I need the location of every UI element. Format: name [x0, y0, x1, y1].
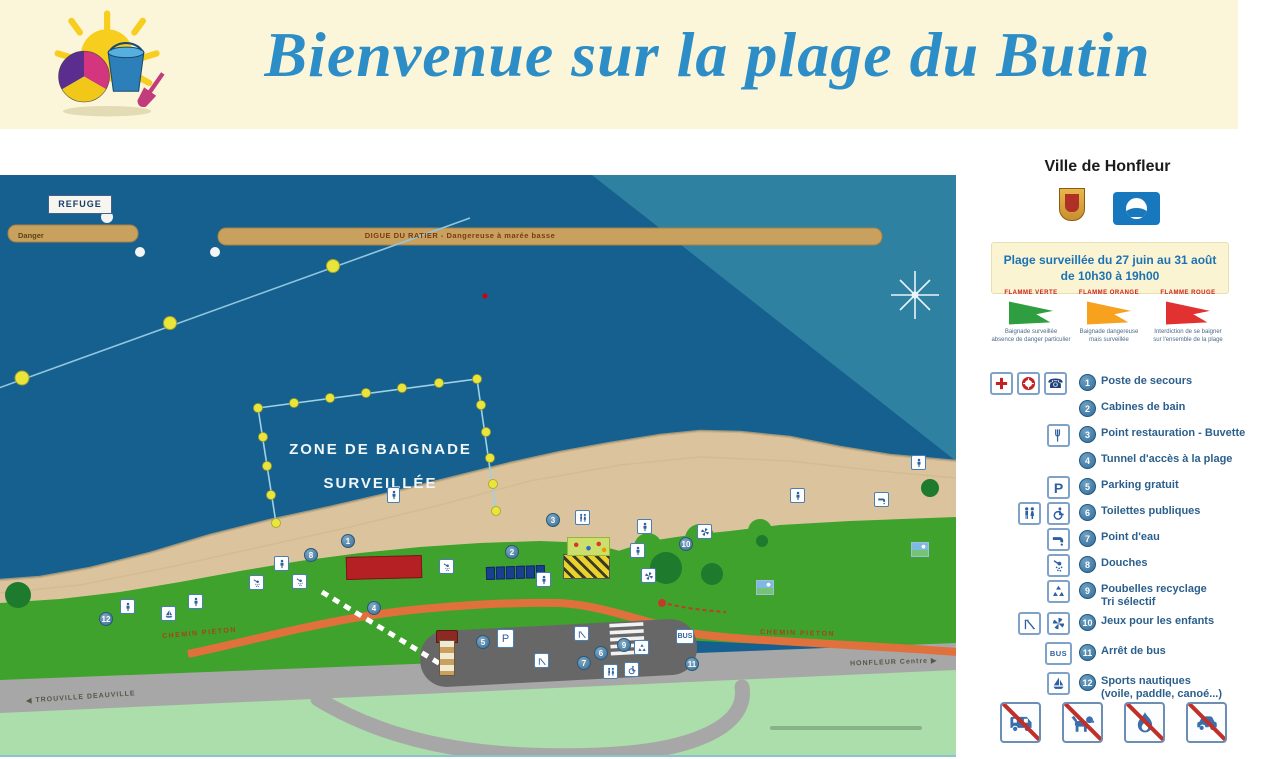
shower-icon	[249, 575, 264, 590]
legend-row-5: P 5 Parking gratuit	[985, 476, 1270, 502]
legend-row-8: 8 Douches	[985, 554, 1270, 580]
arrow-left-icon: ◀	[26, 697, 33, 704]
playground-icon	[1047, 612, 1070, 635]
danger-label: Danger	[18, 231, 44, 240]
beach-map: REFUGE Danger DIGUE DU RATIER - Dangereu…	[0, 175, 956, 757]
parking-icon: P	[1047, 476, 1070, 499]
surveillance-line1: Plage surveillée du 27 juin au 31 août	[1004, 253, 1217, 267]
flag-red-column: FLAMME ROUGE Interdiction de se baigners…	[1148, 290, 1228, 344]
legend-row-3: 3 Point restauration - Buvette	[985, 424, 1270, 450]
flag-orange-title: FLAMME ORANGE	[1069, 290, 1149, 296]
beach-sign-page: Bienvenue sur la plage du Butin	[0, 0, 1270, 759]
dike-label: DIGUE DU RATIER - Dangereuse à marée bas…	[250, 231, 670, 240]
viewpoint-photo-icon	[756, 580, 774, 595]
refuge-label: REFUGE	[48, 195, 112, 214]
swim-zone-label-line1: ZONE DE BAIGNADE	[283, 441, 478, 458]
map-marker-2: 2	[505, 545, 519, 559]
map-marker-3: 3	[546, 513, 560, 527]
red-flag-icon	[1166, 300, 1210, 326]
shower-icon	[292, 574, 307, 589]
map-marker-10: 10	[679, 537, 693, 551]
legend-row-12: 12 Sports nautiques(voile, paddle, canoé…	[985, 672, 1270, 698]
map-marker-4: 4	[367, 601, 381, 615]
person-icon	[188, 594, 203, 609]
recycle-icon	[634, 640, 649, 655]
playground-icon	[641, 568, 656, 583]
surveillance-line2: de 10h30 à 19h00	[1061, 269, 1160, 283]
viewpoint-photo-icon	[911, 542, 929, 557]
flag-orange-column: FLAMME ORANGE Baignade dangereusemais su…	[1069, 290, 1149, 344]
playground-icon	[697, 524, 712, 539]
map-marker-9: 9	[617, 638, 631, 652]
toilets-icon	[575, 510, 590, 525]
person-icon	[911, 455, 926, 470]
beach-toys-logo	[42, 6, 168, 124]
map-marker-7: 7	[577, 656, 591, 670]
bus-stop-icon: BUS	[1045, 642, 1072, 665]
toilets-icon	[1018, 502, 1041, 525]
legend-row-7: 7 Point d'eau	[985, 528, 1270, 554]
map-marker-8: 8	[304, 548, 318, 562]
slide-icon	[574, 626, 589, 641]
no-dogs-icon	[1062, 702, 1103, 743]
legend-row-2: 2 Cabines de bain	[985, 398, 1270, 424]
life-ring-icon	[1017, 372, 1040, 395]
pavillon-bleu-logo	[1113, 192, 1160, 225]
recycle-icon	[1047, 580, 1070, 603]
legend-row-9: 9 Poubelles recyclageTri sélectif	[985, 580, 1270, 606]
no-cars-icon	[1186, 702, 1227, 743]
sailing-icon	[161, 606, 176, 621]
map-marker-11: 11	[685, 657, 699, 671]
map-base-art	[0, 175, 956, 755]
wave-icon	[1126, 198, 1147, 219]
surveillance-hours-box: Plage surveillée du 27 juin au 31 août d…	[991, 242, 1229, 294]
wheelchair-icon	[624, 662, 639, 677]
person-icon	[790, 488, 805, 503]
orange-flag-icon	[1087, 300, 1131, 326]
map-marker-5: 5	[476, 635, 490, 649]
green-flag-icon	[1009, 300, 1053, 326]
slide-icon	[534, 653, 549, 668]
person-icon	[120, 599, 135, 614]
lighthouse	[433, 630, 459, 674]
person-icon	[630, 543, 645, 558]
red-buoy	[483, 294, 488, 299]
no-camping-icon	[1000, 702, 1041, 743]
snack-terrace	[563, 554, 610, 579]
swim-zone-label-line2: SURVEILLÉE	[283, 475, 478, 492]
swim-zone-flag-icon	[387, 487, 400, 503]
arrow-right-icon: ▶	[931, 657, 938, 664]
city-title: Ville de Honfleur	[985, 158, 1230, 176]
legend-row-1: ☎ 1 Poste de secours	[985, 372, 1270, 398]
legend-row-11: BUS 11 Arrêt de bus	[985, 642, 1270, 668]
honfleur-crest-logo	[1059, 188, 1085, 221]
flag-red-title: FLAMME ROUGE	[1148, 290, 1228, 296]
shower-icon	[1047, 554, 1070, 577]
toilets-icon	[603, 664, 618, 679]
parking-icon: P	[497, 629, 514, 648]
person-icon	[274, 556, 289, 571]
bus-stop-icon: BUS	[676, 629, 694, 644]
person-icon	[637, 519, 652, 534]
no-fire-icon	[1124, 702, 1165, 743]
flag-green-title: FLAMME VERTE	[991, 290, 1071, 296]
restaurant-icon	[1047, 424, 1070, 447]
legend-row-10: 10 Jeux pour les enfants	[985, 612, 1270, 638]
map-credit-text	[770, 726, 922, 730]
shower-icon	[439, 559, 454, 574]
slide-icon	[1018, 612, 1041, 635]
person-icon	[536, 572, 551, 587]
wheelchair-icon	[1047, 502, 1070, 525]
legend-row-4: 4 Tunnel d'accès à la plage	[985, 450, 1270, 476]
map-marker-6: 6	[594, 646, 608, 660]
sailing-icon	[1047, 672, 1070, 695]
map-marker-1: 1	[341, 534, 355, 548]
page-title: Bienvenue sur la plage du Butin	[215, 18, 1200, 92]
flag-green-column: FLAMME VERTE Baignade surveilléeabsence …	[991, 290, 1071, 344]
banner: Bienvenue sur la plage du Butin	[0, 0, 1238, 129]
legend-row-6: 6 Toilettes publiques	[985, 502, 1270, 528]
map-marker-12: 12	[99, 612, 113, 626]
phone-icon: ☎	[1044, 372, 1067, 395]
first-aid-cross-icon	[990, 372, 1013, 395]
water-tap-icon	[874, 492, 889, 507]
first-aid-building	[346, 555, 423, 580]
info-sidebar: Ville de Honfleur Plage surveillée du 27…	[985, 150, 1270, 759]
water-tap-icon	[1047, 528, 1070, 551]
flower-bed	[567, 537, 610, 556]
